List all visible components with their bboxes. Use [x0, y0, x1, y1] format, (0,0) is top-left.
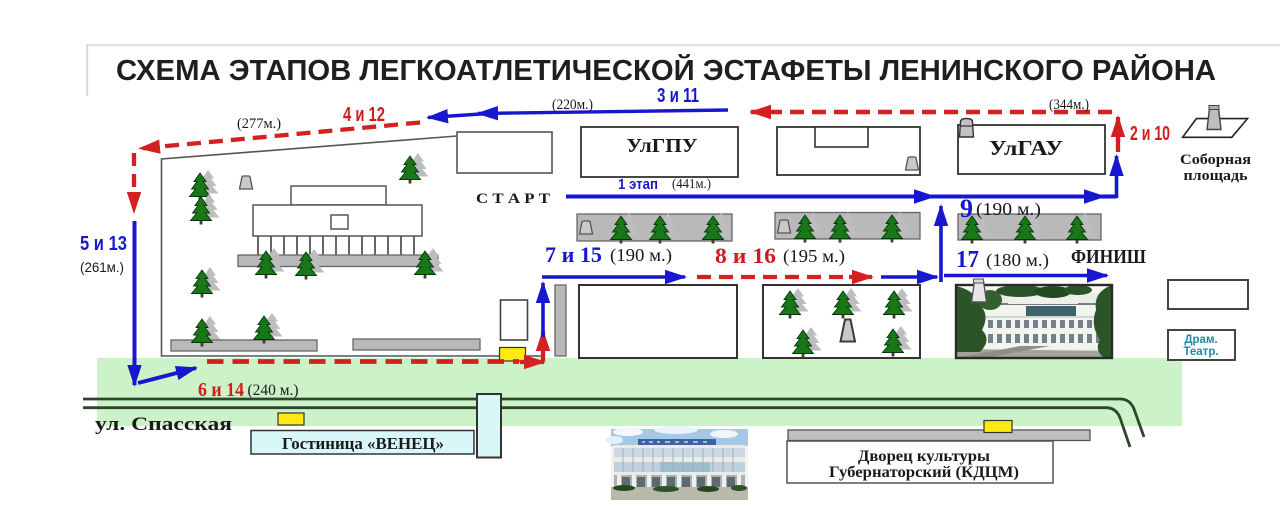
svg-text:5 и 13: 5 и 13 [80, 232, 127, 255]
svg-text:17: 17 [956, 247, 979, 273]
svg-text:(277м.): (277м.) [237, 116, 281, 132]
svg-text:4 и 12: 4 и 12 [343, 104, 385, 126]
svg-text:УлГПУ: УлГПУ [627, 135, 698, 157]
svg-text:(261м.): (261м.) [80, 259, 124, 275]
svg-text:6 и 14: 6 и 14 [198, 379, 244, 401]
svg-text:3 и 11: 3 и 11 [657, 85, 699, 107]
svg-text:ул. Спасская: ул. Спасская [95, 414, 232, 435]
svg-text:УлГАУ: УлГАУ [989, 136, 1063, 160]
svg-text:(220м.): (220м.) [552, 97, 593, 113]
svg-text:площадь: площадь [1184, 168, 1248, 184]
svg-text:СХЕМА ЭТАПОВ ЛЕГКОАТЛЕТИЧЕСКОЙ: СХЕМА ЭТАПОВ ЛЕГКОАТЛЕТИЧЕСКОЙ ЭСТАФЕТЫ … [116, 53, 1216, 87]
svg-text:(195 м.): (195 м.) [783, 246, 845, 267]
svg-text:Театр.: Театр. [1183, 346, 1218, 358]
svg-text:7 и 15: 7 и 15 [545, 242, 602, 267]
svg-text:(180 м.): (180 м.) [986, 250, 1049, 271]
svg-text:(240 м.): (240 м.) [248, 382, 299, 399]
svg-text:(190 м.): (190 м.) [976, 199, 1041, 220]
svg-text:(190 м.): (190 м.) [610, 245, 672, 266]
svg-text:Дворец культуры: Дворец культуры [858, 448, 991, 465]
svg-text:(344м.): (344м.) [1049, 97, 1089, 113]
svg-text:Соборная: Соборная [1180, 152, 1251, 168]
svg-text:ФИНИШ: ФИНИШ [1071, 246, 1146, 268]
svg-text:(441м.): (441м.) [672, 177, 711, 192]
svg-text:Гостиница «ВЕНЕЦ»: Гостиница «ВЕНЕЦ» [282, 434, 444, 453]
svg-text:Губернаторский (КДЦМ): Губернаторский (КДЦМ) [829, 464, 1019, 481]
svg-text:8 и 16: 8 и 16 [715, 243, 776, 268]
svg-text:9: 9 [960, 194, 973, 223]
svg-text:Драм.: Драм. [1184, 334, 1217, 346]
svg-text:2 и 10: 2 и 10 [1130, 123, 1170, 145]
svg-text:1 этап: 1 этап [618, 176, 658, 193]
svg-text:С Т А Р Т: С Т А Р Т [476, 191, 550, 207]
